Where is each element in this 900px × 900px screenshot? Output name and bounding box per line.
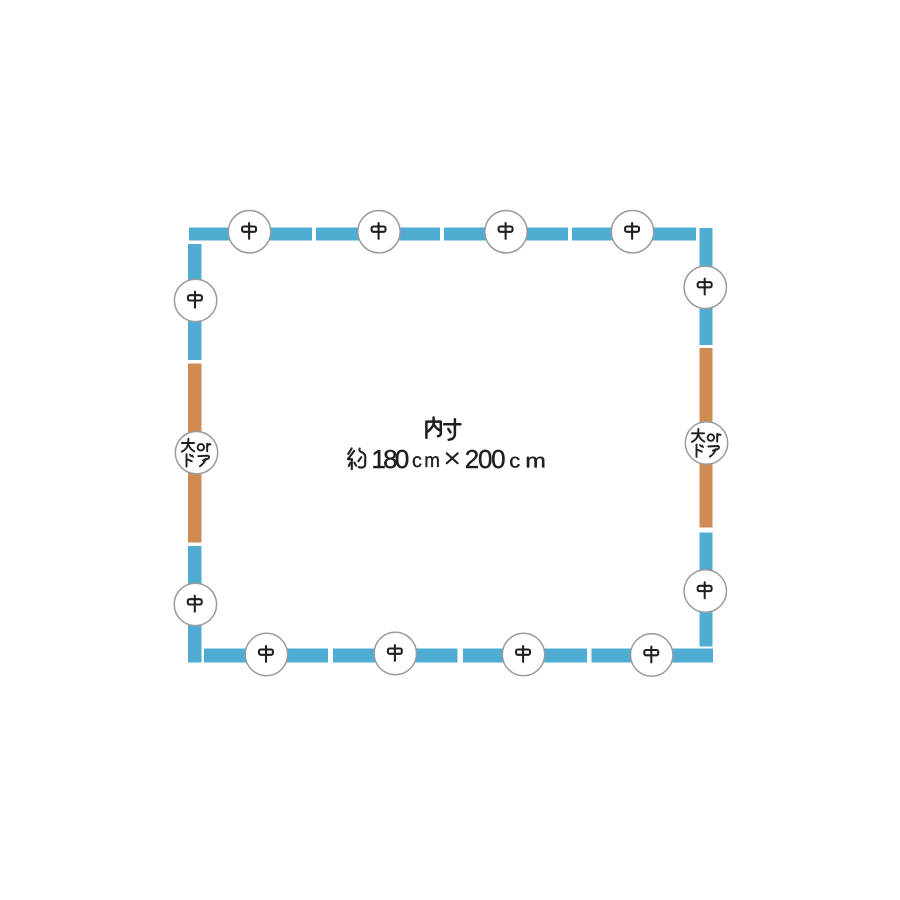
svg-text:c: c <box>412 450 422 472</box>
svg-text:c: c <box>509 451 520 473</box>
svg-text:m: m <box>424 450 440 472</box>
svg-text:180: 180 <box>371 444 409 474</box>
svg-text:m: m <box>525 451 546 473</box>
svg-text:200: 200 <box>465 444 505 474</box>
